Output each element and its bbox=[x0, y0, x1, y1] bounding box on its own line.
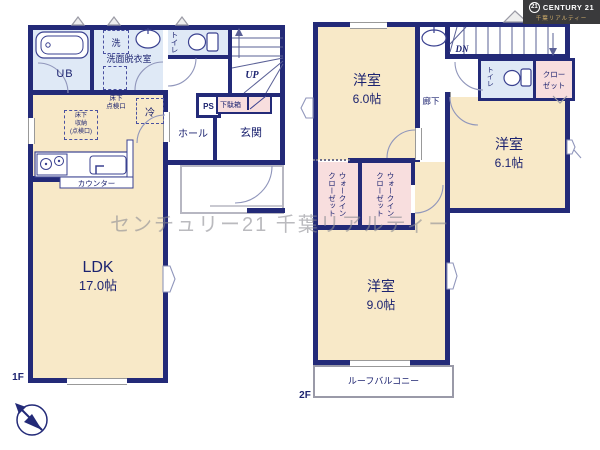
wic2-line2: クローゼット bbox=[374, 165, 385, 223]
bedroom-b-name: 洋室 bbox=[472, 136, 546, 153]
hallway-label: 廊下 bbox=[413, 96, 449, 106]
washbasin-icon-1f bbox=[136, 28, 160, 48]
century21-logo: 21 CENTURY 21 千葉リアルティー bbox=[523, 0, 600, 24]
floor1-tag: 1F bbox=[8, 372, 28, 384]
wic1-line2: クローゼット bbox=[326, 165, 337, 223]
wic2-label: ウォークイン クローゼット bbox=[374, 165, 395, 223]
unit-bath-label: UB bbox=[45, 68, 85, 81]
toilet-2f-text: トイレ bbox=[485, 62, 493, 90]
bathtub-icon bbox=[36, 32, 88, 58]
hall-label: ホール bbox=[172, 129, 214, 141]
toilet-2f-label: トイレ bbox=[485, 62, 493, 90]
washroom-label: 洗面脱衣室 bbox=[94, 54, 164, 65]
washbasin-icon-2f bbox=[422, 27, 446, 46]
toilet-icon-2f bbox=[504, 69, 531, 86]
floor-hatch-line2: 点検口 bbox=[106, 103, 126, 110]
bedroom-b-size: 6.1帖 bbox=[472, 156, 546, 170]
wic2-line1: ウォークイン bbox=[385, 165, 396, 223]
stairs-1f bbox=[232, 28, 283, 93]
bedroom-c-size: 9.0帖 bbox=[344, 298, 418, 312]
bedroom-a-size: 6.0帖 bbox=[330, 92, 404, 106]
logo-badge-icon: 21 bbox=[529, 2, 540, 13]
wic1-line1: ウォークイン bbox=[337, 165, 348, 223]
shoebox-diagonal bbox=[248, 95, 266, 110]
fixtures-layer bbox=[0, 0, 600, 450]
compass-icon bbox=[15, 403, 47, 435]
toilet-1f-text: トイレ bbox=[170, 29, 179, 55]
toilet-1f-label: トイレ bbox=[170, 29, 179, 55]
stairs-up-label: UP bbox=[240, 70, 264, 82]
bedroom-c-name: 洋室 bbox=[344, 278, 418, 295]
window-markers bbox=[163, 98, 581, 292]
logo-name: CENTURY 21 bbox=[543, 3, 594, 12]
ldk-name-label: LDK bbox=[58, 258, 138, 277]
floor-hatch-label: 床下 点検口 bbox=[100, 95, 132, 111]
floor2-tag: 2F bbox=[294, 390, 316, 402]
entrance-label: 玄関 bbox=[234, 127, 268, 140]
toilet-icon-1f bbox=[189, 33, 219, 51]
bedroom-a-name: 洋室 bbox=[330, 72, 404, 89]
floorplan-canvas: ルーフバルコニー クロー ゼット PS 下駄箱 洗 冷 bbox=[0, 0, 600, 450]
logo-subtitle: 千葉リアルティー bbox=[536, 14, 588, 22]
wic1-label: ウォークイン クローゼット bbox=[326, 165, 347, 223]
counter-label: カウンター bbox=[60, 179, 133, 188]
ldk-size-label: 17.0帖 bbox=[58, 278, 138, 294]
stairs-dn-label: DN bbox=[450, 44, 474, 55]
floor-hatch-line1: 床下 bbox=[110, 95, 123, 102]
